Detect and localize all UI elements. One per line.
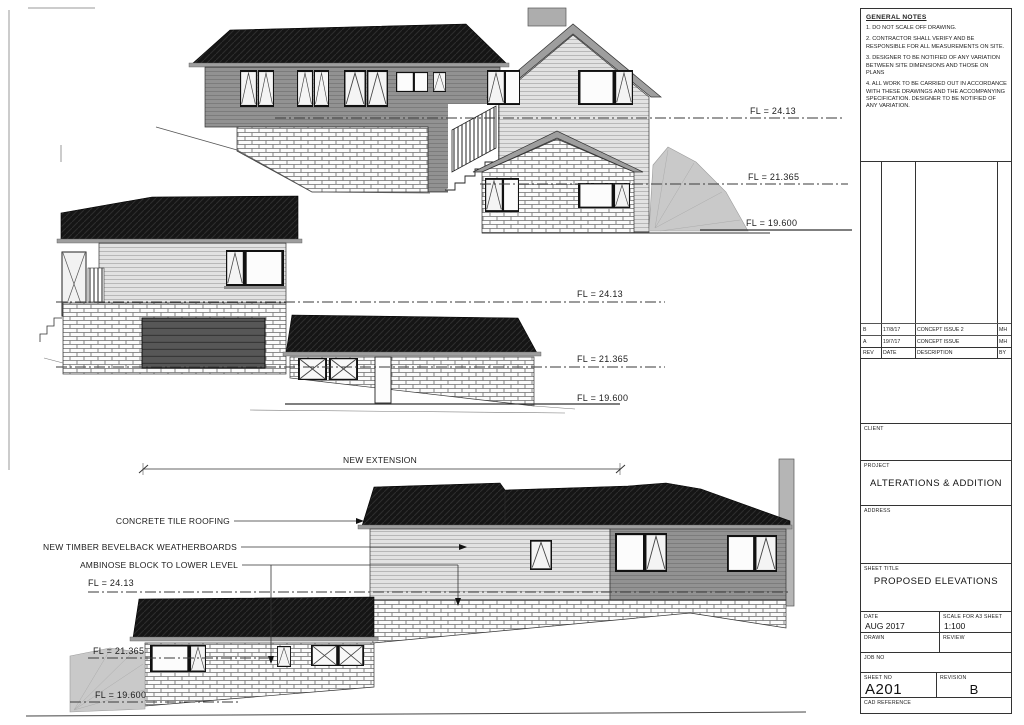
- roof: [362, 483, 790, 526]
- callout-roofing: CONCRETE TILE ROOFING: [116, 516, 364, 526]
- eave-band: [57, 239, 302, 243]
- roofing-label: CONCRETE TILE ROOFING: [116, 516, 230, 526]
- revision-description: CONCEPT ISSUE: [915, 339, 997, 345]
- sheet-no-revision-row: SHEET NO A201 REVISION B: [861, 673, 1011, 698]
- wing-door: [375, 357, 391, 403]
- cad-reference-label: CAD REFERENCE: [861, 698, 1011, 706]
- project-name: ALTERATIONS & ADDITION: [861, 478, 1011, 489]
- extension-weatherboard-wall: [370, 529, 610, 600]
- elevation-bottom: NEW EXTENSION C: [26, 455, 806, 716]
- floor-level-label: FL = 21.365: [93, 646, 144, 656]
- revision-rev: A: [861, 339, 881, 345]
- lower-eave-band: [130, 637, 378, 641]
- garage-door: [142, 318, 265, 368]
- revision-date: 19/7/17: [881, 339, 915, 345]
- sheet-no-label: SHEET NO: [861, 673, 936, 681]
- floor-level-label: FL = 24.13: [88, 578, 134, 588]
- sheet-title-box: SHEET TITLE PROPOSED ELEVATIONS: [861, 564, 1011, 612]
- job-no-box: JOB NO: [861, 653, 1011, 673]
- floor-level-label: FL = 24.13: [577, 289, 623, 299]
- note-item: 4. ALL WORK TO BE CARRIED OUT IN ACCORDA…: [866, 81, 1007, 111]
- project-label: PROJECT: [861, 461, 1011, 469]
- address-box: ADDRESS: [861, 506, 1011, 564]
- sheet-title: PROPOSED ELEVATIONS: [861, 576, 1011, 587]
- block-wall: [237, 127, 428, 192]
- block-wall: [370, 600, 786, 643]
- note-item: 1. DO NOT SCALE OFF DRAWING.: [866, 25, 1007, 32]
- roof: [61, 196, 298, 240]
- revision-rev: B: [861, 327, 881, 333]
- floor-level-label: FL = 19.600: [577, 393, 628, 403]
- elevations-drawing: FL = 24.13 FL = 21.365 FL = 19.600: [0, 0, 862, 725]
- block-label: AMBINOSE BLOCK TO LOWER LEVEL: [80, 560, 238, 570]
- new-extension-label: NEW EXTENSION: [343, 455, 417, 465]
- revision-value: B: [937, 682, 1011, 697]
- client-box: CLIENT: [861, 424, 1011, 461]
- revision-table: B 17/8/17 CONCEPT ISSUE 2 MH A 19/7/17 C…: [861, 162, 1011, 359]
- drawn-value: [861, 641, 939, 642]
- date-label: DATE: [861, 612, 939, 620]
- cad-reference-box: CAD REFERENCE: [861, 698, 1011, 714]
- wing-windows: [299, 357, 391, 403]
- revision-row: A 19/7/17 CONCEPT ISSUE MH: [861, 335, 1011, 347]
- eave-band: [189, 63, 509, 67]
- drawn-label: DRAWN: [861, 633, 939, 641]
- sheet-title-label: SHEET TITLE: [861, 564, 1011, 572]
- ground-line: [26, 712, 806, 716]
- balustrade: [88, 268, 104, 302]
- note-item: 2. CONTRACTOR SHALL VERIFY AND BE RESPON…: [866, 36, 1007, 51]
- general-notes: GENERAL NOTES 1. DO NOT SCALE OFF DRAWIN…: [861, 9, 1011, 162]
- revision-label: REVISION: [937, 673, 1011, 681]
- date-value: AUG 2017: [861, 620, 939, 631]
- roof: [192, 24, 506, 65]
- scale-label: SCALE FOR A3 SHEET: [940, 612, 1011, 620]
- chimney: [528, 8, 566, 26]
- client-label: CLIENT: [861, 424, 1011, 432]
- floor-level-label: FL = 21.365: [748, 172, 799, 182]
- revision-header-date: DATE: [881, 350, 915, 356]
- window-upper: [224, 251, 286, 289]
- revision-header-row: REV DATE DESCRIPTION BY: [861, 347, 1011, 358]
- drawn-review-row: DRAWN REVIEW: [861, 633, 1011, 653]
- address-label: ADDRESS: [861, 506, 1011, 514]
- entry-steps: [40, 318, 62, 342]
- sheet-no-value: A201: [861, 681, 936, 698]
- general-notes-title: GENERAL NOTES: [866, 14, 1007, 21]
- new-extension-dimension: NEW EXTENSION: [139, 455, 625, 475]
- revision-date: 17/8/17: [881, 327, 915, 333]
- scale-value: 1:100: [940, 620, 1011, 631]
- job-no-label: JOB NO: [861, 653, 1011, 661]
- revision-by: MH: [997, 327, 1011, 333]
- revision-header-rev: REV: [861, 350, 881, 356]
- revision-header-by: BY: [997, 350, 1011, 356]
- eave-band: [358, 525, 792, 529]
- weatherboards-label: NEW TIMBER BEVELBACK WEATHERBOARDS: [43, 542, 237, 552]
- date-scale-row: DATE AUG 2017 SCALE FOR A3 SHEET 1:100: [861, 612, 1011, 633]
- wing-eave-band: [283, 352, 541, 356]
- review-value: [940, 641, 1011, 642]
- floor-level-label: FL = 21.365: [577, 354, 628, 364]
- floor-level-label: FL = 19.600: [95, 690, 146, 700]
- note-item: 3. DESIGNER TO BE NOTIFIED OF ANY VARIAT…: [866, 55, 1007, 77]
- revision-row: B 17/8/17 CONCEPT ISSUE 2 MH: [861, 323, 1011, 335]
- revision-description: CONCEPT ISSUE 2: [915, 327, 997, 333]
- floor-level-label: FL = 19.600: [746, 218, 797, 228]
- landscape-rock: [649, 147, 748, 231]
- floor-level-label: FL = 24.13: [750, 106, 796, 116]
- drawing-sheet: FL = 24.13 FL = 21.365 FL = 19.600: [0, 0, 1024, 725]
- title-block: GENERAL NOTES 1. DO NOT SCALE OFF DRAWIN…: [860, 8, 1012, 714]
- revision-by: MH: [997, 339, 1011, 345]
- project-box: PROJECT ALTERATIONS & ADDITION: [861, 461, 1011, 506]
- lower-roof: [133, 597, 374, 638]
- title-block-spacer: [861, 359, 1011, 424]
- revision-header-description: DESCRIPTION: [915, 350, 997, 356]
- review-label: REVIEW: [940, 633, 1011, 641]
- job-no-value: [861, 661, 1011, 662]
- wing-roof: [286, 315, 537, 353]
